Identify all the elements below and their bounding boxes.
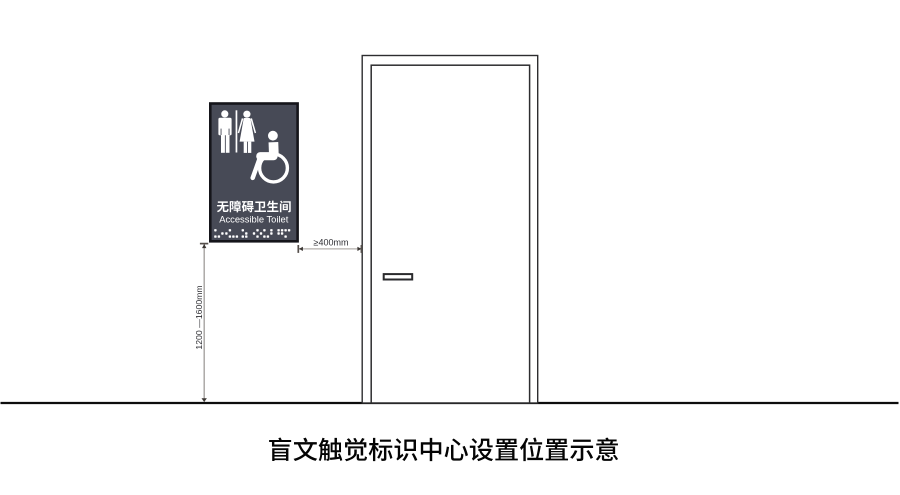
- svg-text:Accessible Toilet: Accessible Toilet: [219, 213, 289, 224]
- svg-text:1200 —1600mm: 1200 —1600mm: [194, 285, 204, 349]
- svg-text:≥400mm: ≥400mm: [314, 238, 349, 248]
